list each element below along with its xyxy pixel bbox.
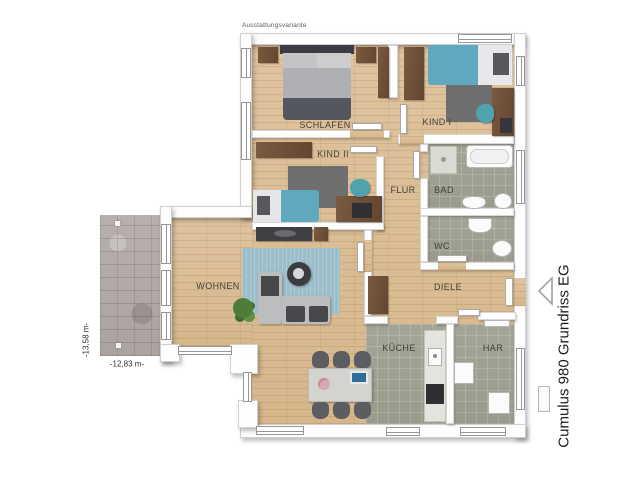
wall-bad-wc [420, 208, 514, 216]
room-label-wohnen: WOHNEN [181, 281, 255, 291]
door-wc [437, 255, 467, 262]
window-wohnen-south [178, 346, 232, 355]
terrace-door-2 [161, 270, 171, 306]
terrace-marker-top [115, 221, 120, 226]
double-bed-blanket-light [283, 68, 351, 98]
window-schlafen-west-1 [241, 48, 251, 78]
dining-chair [312, 351, 329, 368]
window-wohnen-corner [243, 372, 252, 402]
room-label-flur: FLUR [386, 185, 420, 195]
room-label-diele: DIELE [428, 282, 468, 292]
window-schlafen-west-2 [241, 102, 251, 160]
window-bad-east [516, 150, 525, 204]
door-gap-schlafen [350, 130, 384, 138]
sofa-cushion-1 [286, 306, 305, 322]
kitchen-faucet [433, 354, 437, 358]
kid-bed-1-pillow [493, 53, 509, 75]
desk-chair-kind2 [350, 179, 370, 197]
door-wohnen [357, 242, 364, 272]
room-label-wc: WC [430, 241, 454, 251]
wall-bump-north [160, 206, 252, 218]
toilet-wc [492, 240, 512, 257]
plant [233, 298, 253, 318]
desk-decor-kind1 [500, 118, 512, 133]
desk-chair-kind1 [476, 104, 494, 123]
nightstand-left [258, 47, 278, 63]
window-kind1-north [458, 34, 512, 43]
wall-wc-south [420, 262, 514, 270]
door-gap-wohnen [364, 240, 372, 272]
wardrobe-kind1 [404, 47, 424, 100]
table-decor-placemat [350, 371, 368, 384]
plan-title: Cumulus 980 Grundriss EG [556, 264, 573, 447]
double-bed-pillows [283, 53, 351, 68]
sofa-chaise-cushion [261, 276, 279, 296]
window-dining-south [256, 426, 304, 435]
room-label-har: HAR [478, 343, 508, 353]
wall-bad-west-a [420, 144, 428, 152]
nightstand-right [356, 47, 376, 63]
double-bed-blanket-dark [283, 98, 351, 120]
room-label-kind1: KIND I [414, 117, 460, 127]
kid-bed-1-blanket [428, 45, 478, 85]
wall-diele-south-b [436, 316, 458, 324]
terrace-door-1 [161, 224, 171, 264]
wardrobe-kind2 [256, 142, 312, 158]
wall-bump-corner-b [230, 344, 258, 374]
door-bad [413, 151, 420, 179]
kid-bed-2-pillow [257, 196, 270, 215]
window-kueche-south [386, 427, 420, 436]
side-table [314, 227, 328, 241]
exterior-fixture [538, 386, 550, 412]
wall-bump-corner-c [238, 400, 258, 428]
wardrobe-schlafen [378, 47, 389, 98]
wall-wc-west [420, 216, 428, 262]
terrace [100, 215, 160, 356]
window-har-east [516, 348, 525, 410]
sink-bad [462, 196, 486, 209]
stove [426, 384, 444, 404]
door-gap-wc [438, 262, 466, 270]
dimension-width-label: -12,83 m- [110, 360, 144, 369]
variant-label: Ausstattungsvariante [242, 22, 307, 29]
room-label-kueche: KÜCHE [376, 343, 422, 353]
desk-decor-kind2 [352, 203, 372, 218]
wall-schlafen-kind1 [388, 45, 398, 98]
entrance-arrow-icon [536, 276, 554, 306]
window-har-south [460, 427, 506, 436]
dining-chair [354, 351, 371, 368]
door-kind1 [400, 104, 407, 134]
wall-diele-south-a [364, 316, 388, 324]
floor-plan-canvas: Ausstattungsvariante -13,58 m- -12,83 m- [0, 0, 640, 480]
wall-bump-south-a [160, 344, 180, 362]
toilet-bad [494, 193, 512, 209]
room-label-bad: BAD [430, 185, 458, 195]
wardrobe-diele [368, 276, 388, 314]
terrace-door-3 [161, 312, 171, 340]
har-appliance-2 [488, 392, 510, 414]
wall-har-north [478, 312, 516, 320]
door-gap-kind1 [400, 134, 424, 144]
dining-chair [333, 402, 350, 419]
sofa-cushion-2 [309, 306, 328, 322]
door-har [458, 309, 480, 316]
sink-wc [468, 218, 492, 233]
dining-chair [312, 402, 329, 419]
entrance-gap [514, 278, 526, 306]
bathtub-inner [470, 149, 509, 164]
dining-chair [333, 351, 350, 368]
dimension-height-label: -13,58 m- [82, 323, 91, 357]
room-label-kind2: KIND II [310, 149, 356, 159]
tv-board-bowl [274, 230, 296, 237]
armchair-cushion [293, 268, 304, 279]
shower-drain [441, 157, 446, 162]
wall-kueche-har [446, 324, 454, 424]
room-label-schlafen: SCHLAFEN [288, 120, 362, 130]
dining-chair [354, 402, 371, 419]
har-shelf [484, 320, 510, 327]
terrace-marker-bottom [116, 343, 121, 348]
window-kind1-east [516, 56, 525, 86]
har-appliance-1 [454, 362, 474, 384]
kid-bed-2-blanket [281, 190, 319, 222]
entrance-door [505, 278, 513, 306]
kitchen-counter [424, 330, 446, 422]
table-decor-flowers [318, 378, 330, 390]
